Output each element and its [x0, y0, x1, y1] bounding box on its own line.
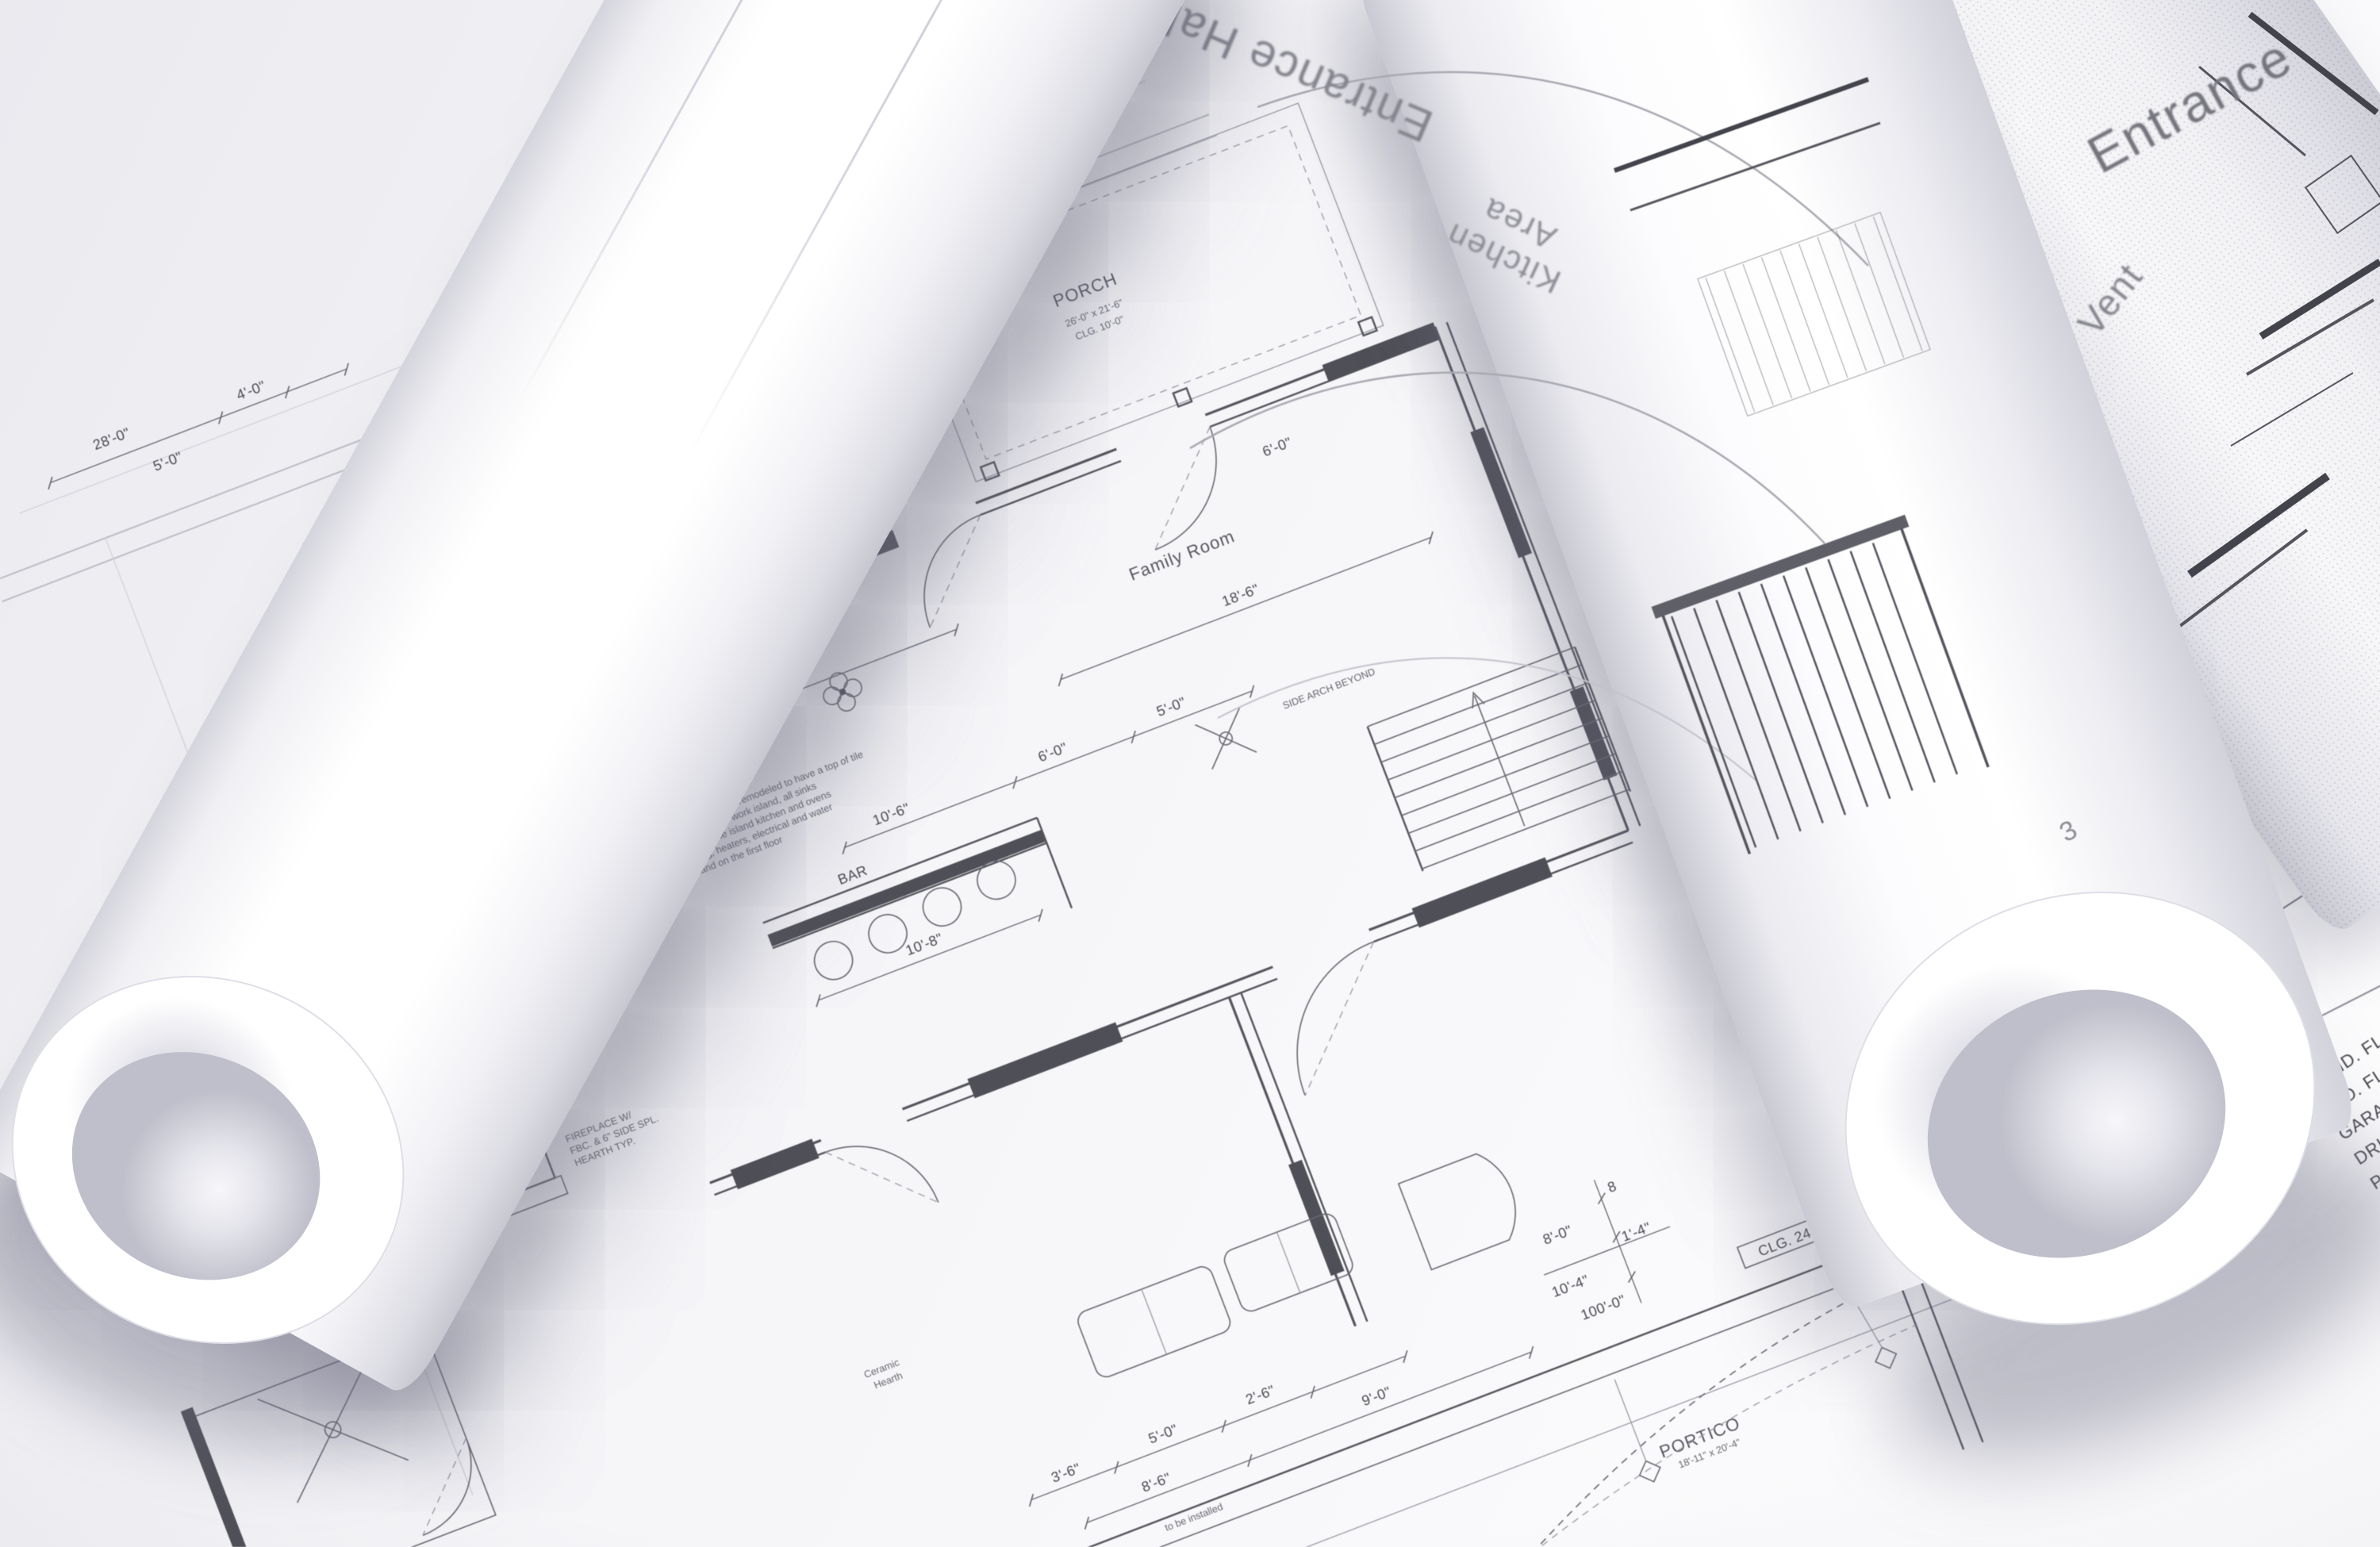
- dim-8-0: 8'-0": [1541, 1223, 1574, 1248]
- paper-curl-opening: [1884, 942, 2268, 1304]
- photo-of-blueprints: 28'-0" 5'-0" 4'-0" 7'-10" 5'-4" 3'-6": [0, 0, 2380, 1547]
- furniture: Ceramic Hearth: [862, 1130, 1528, 1473]
- dimension-chain-top-left: 28'-0" 5'-0" 4'-0": [36, 343, 361, 512]
- dim-100-0: 100'-0": [1579, 1292, 1628, 1323]
- install-note: to be installed: [1163, 1501, 1224, 1534]
- dim-4-0: 4'-0": [234, 378, 267, 403]
- bar-stool: [863, 909, 912, 958]
- window-tag-diamond: [1636, 1457, 1664, 1486]
- dim-6-0: 6'-0": [1036, 739, 1069, 765]
- dim-5-0: 5'-0": [151, 449, 184, 474]
- window-tag-diamond: [1871, 1343, 1900, 1372]
- dimension-chain-bottom: 3'-6" 5'-0" 2'-6" 8'-6" 9'-0" to be inst…: [1019, 1290, 1549, 1547]
- dim-10-4: 10'-4": [1549, 1272, 1591, 1300]
- dim-6-0-porch: 6'-0": [1261, 434, 1294, 459]
- dim-2-6-b: 2'-6": [1243, 1382, 1276, 1407]
- paper-curl-opening: [33, 1011, 359, 1321]
- dim-9-0: 9'-0": [1360, 1384, 1393, 1409]
- dim-8: 8: [1606, 1178, 1619, 1196]
- dimension-chain-hall: 10'-6" 6'-0" 5'-0": [833, 669, 1257, 854]
- dim-28-0: 28'-0": [90, 424, 132, 453]
- bar-stool: [809, 936, 858, 985]
- ceiling-fan-symbol: [817, 666, 869, 718]
- bar-counter: BAR 10'-8": [755, 799, 1072, 1015]
- piano: [1399, 1147, 1528, 1270]
- dim-5-0-b: 5'-0": [1146, 1421, 1180, 1446]
- dim-5-0-hall: 5'-0": [1154, 694, 1188, 720]
- stairs-note: SIDE ARCH BEYOND: [1281, 666, 1376, 711]
- dim-1-4: 1'-4": [1619, 1219, 1653, 1245]
